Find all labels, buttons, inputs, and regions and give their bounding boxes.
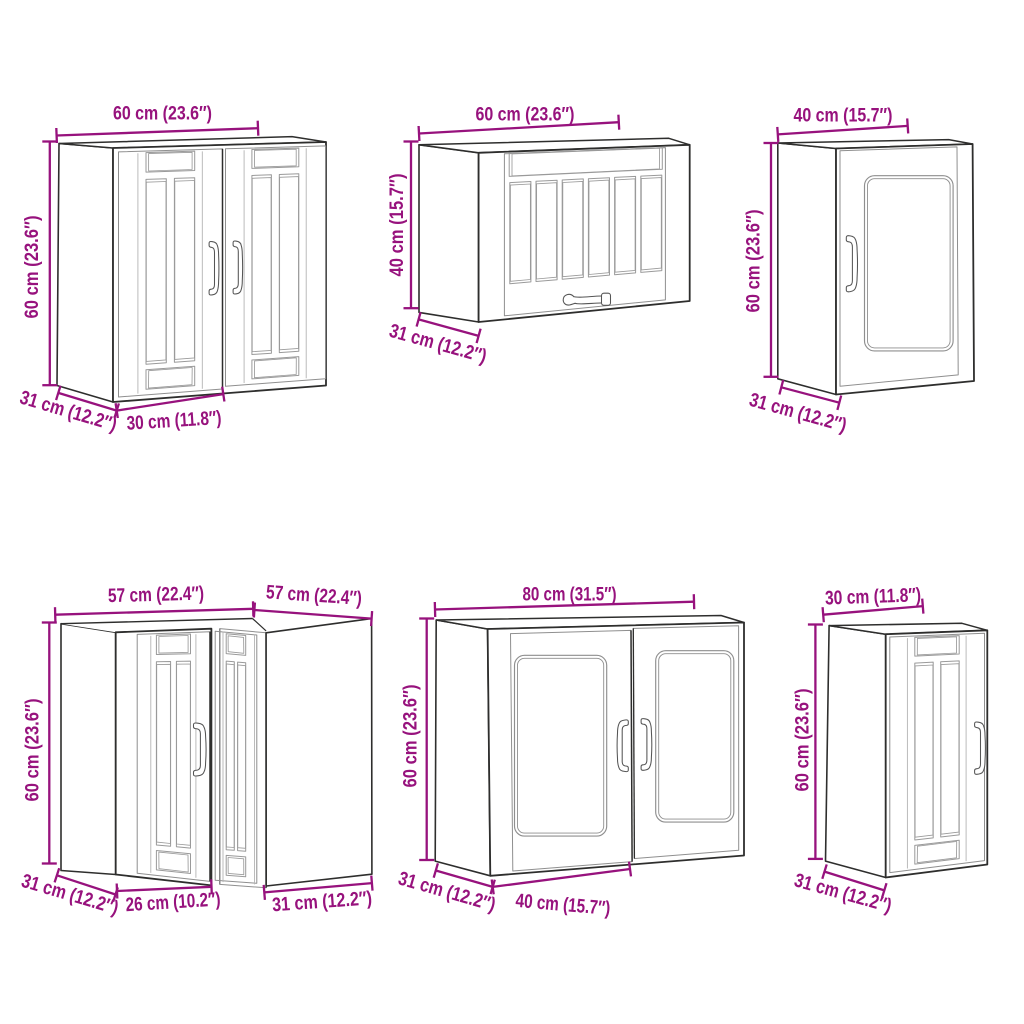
svg-text:60 cm (23.6″): 60 cm (23.6″) xyxy=(476,104,575,126)
svg-text:40 cm (15.7″): 40 cm (15.7″) xyxy=(386,174,408,277)
svg-text:60 cm (23.6″): 60 cm (23.6″) xyxy=(399,685,421,788)
svg-text:80 cm (31.5″): 80 cm (31.5″) xyxy=(523,584,617,606)
svg-text:60 cm (23.6″): 60 cm (23.6″) xyxy=(791,689,813,792)
svg-text:60 cm (23.6″): 60 cm (23.6″) xyxy=(21,216,43,319)
svg-text:60 cm (23.6″): 60 cm (23.6″) xyxy=(113,103,212,125)
svg-text:30 cm (11.8″): 30 cm (11.8″) xyxy=(825,584,922,609)
svg-text:57 cm (22.4″): 57 cm (22.4″) xyxy=(108,583,205,608)
svg-text:40 cm (15.7″): 40 cm (15.7″) xyxy=(794,105,893,127)
svg-text:60 cm (23.6″): 60 cm (23.6″) xyxy=(21,699,43,802)
svg-text:60 cm (23.6″): 60 cm (23.6″) xyxy=(742,210,764,313)
